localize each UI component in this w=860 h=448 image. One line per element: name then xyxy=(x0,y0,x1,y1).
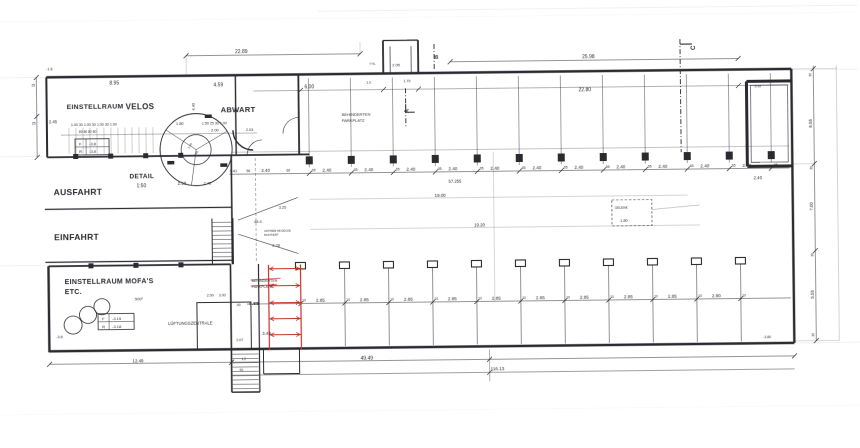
dim-label-vertical: 8.55 xyxy=(808,119,813,128)
scan-line xyxy=(0,12,858,22)
col-width-label: 65 xyxy=(774,163,778,167)
dim-label: 1.2 xyxy=(241,357,246,361)
col-width-label: 65 xyxy=(690,164,694,168)
top-parking-row: 652.40652.40652.40652.40652.40652.40652.… xyxy=(305,73,778,176)
red-behinderten-label: BEHINDERTEN xyxy=(252,279,278,283)
scan-artifacts xyxy=(0,5,860,415)
dim-label: 6.00 xyxy=(304,84,314,90)
dim-label: 8.95 xyxy=(109,81,119,87)
annotation-antrieb: MONTIERT xyxy=(264,233,279,237)
level-value: -3.52 xyxy=(753,84,761,88)
section-marker-b: B xyxy=(434,55,440,59)
wall-bottom xyxy=(49,343,794,351)
red-dim-label: 4.88 xyxy=(249,301,259,306)
column-symbol xyxy=(390,155,397,163)
room-label-einfahrt: EINFAHRT xyxy=(54,232,100,243)
col-width-label: 10 xyxy=(610,295,614,299)
bay-dim-label: 2.85 xyxy=(668,294,677,299)
column-symbol xyxy=(432,155,439,163)
red-stall-edge xyxy=(268,265,269,350)
dim-label: 25 xyxy=(31,83,35,87)
section-marker-c: C xyxy=(691,45,697,50)
level-value: -3.15 xyxy=(112,316,122,321)
dim-line xyxy=(253,85,788,91)
area-label: 500² xyxy=(135,296,144,301)
dim-line xyxy=(186,54,360,56)
column-symbol xyxy=(88,263,93,268)
column-symbol xyxy=(642,153,649,161)
wall-left-upper xyxy=(46,77,47,157)
red-stall-edge xyxy=(300,264,301,349)
behinderten-label: PARKPLATZ xyxy=(342,118,365,123)
tree-circle xyxy=(94,299,110,315)
wall-stair1-left xyxy=(212,218,213,264)
ramp-line xyxy=(238,197,298,220)
bay-dim-label: 2.85 xyxy=(448,296,457,301)
dim-label-chain: 80 80 80 80 xyxy=(79,130,97,134)
col-width-label: 65 xyxy=(312,168,316,172)
stall-divider xyxy=(608,266,609,343)
dim-label: 25 xyxy=(32,121,36,125)
labels: 22.89 25.98 8.95 4.59 6.00 22.80 2.45 1.… xyxy=(31,43,816,377)
tree-circle xyxy=(64,316,82,334)
stall-divider xyxy=(520,267,521,344)
column-symbol xyxy=(684,152,691,160)
dim-label-total-left: 22.89 xyxy=(235,49,248,55)
level-label: F xyxy=(102,316,105,321)
dim-label-chain: 1.00 30 1.00 30 1.00 30 1.00 xyxy=(71,123,117,128)
bay-dim-label: 2.40 xyxy=(616,164,625,169)
bay-dim-label: 2.40 xyxy=(574,165,583,170)
dim-line xyxy=(36,77,37,157)
spiral-spoke xyxy=(196,131,227,149)
dim-line xyxy=(836,65,839,340)
walls xyxy=(43,36,795,394)
col-width-label: 10 xyxy=(390,297,394,301)
bay-dim-label: 2.40 xyxy=(448,166,457,171)
column-footing xyxy=(471,260,481,267)
level-value: -3.8 xyxy=(89,149,97,154)
wall-lueftung-room xyxy=(197,302,252,350)
dim-label: 12.49 xyxy=(133,358,145,363)
column-symbol xyxy=(516,154,523,162)
detail-title: DETAIL xyxy=(129,173,154,180)
bay-dim-label: 2.40 xyxy=(322,168,331,173)
dim-label: 2.00 xyxy=(207,293,214,297)
level-label: F xyxy=(79,141,82,146)
column-footing xyxy=(339,262,349,269)
dim-label: 49.49 xyxy=(360,356,373,362)
column-symbol xyxy=(474,154,481,162)
column-footing xyxy=(691,258,701,265)
dim-label-vertical: 30 xyxy=(810,253,814,257)
col-width-label: 10 xyxy=(346,298,350,302)
dim-label: Y.NL xyxy=(369,62,376,66)
stall-divider xyxy=(686,74,687,163)
dimension-lines xyxy=(33,36,839,386)
col-width-label: 65 xyxy=(522,166,526,170)
col-width-label: 10 xyxy=(478,296,482,300)
dim-label: 2.45 xyxy=(203,180,212,185)
dim-label: 1.80 xyxy=(176,121,185,126)
dim-label-vertical: 5.55 xyxy=(810,290,815,299)
dim-label: 2.03 xyxy=(246,128,253,132)
wall-columns xyxy=(73,153,184,269)
col-width-label: 65 xyxy=(732,164,736,168)
stall-divider xyxy=(392,77,393,166)
room-label-mofas: EINSTELLRAUM MOFA'S xyxy=(65,278,154,286)
stall-divider xyxy=(644,75,645,164)
dim-label: 2.78 xyxy=(272,243,281,248)
wall-ramp-divider1 xyxy=(45,207,232,209)
bay-dim-label: 2.85 xyxy=(580,295,589,300)
stall-divider xyxy=(740,264,741,341)
dim-label: 65 xyxy=(286,169,290,173)
col-width-label: 65 xyxy=(648,165,652,169)
dim-label: 2.40 xyxy=(753,175,762,180)
wall-shaft-left xyxy=(230,264,231,392)
bay-dim-label: 2.40 xyxy=(364,167,373,172)
dim-label: 3.00 xyxy=(219,293,226,297)
wall-ramp-divider2 xyxy=(45,260,232,262)
section-line-c xyxy=(680,39,681,152)
wall-abwart-right xyxy=(298,74,299,154)
room-label-ausfahrt: AUSFAHRT xyxy=(54,187,103,198)
bay-dim-label: 2.85 xyxy=(624,294,633,299)
bay-dim-label: 2.85 xyxy=(360,297,369,302)
behinderten-label: BEHINDERTEN xyxy=(342,112,371,117)
stall-divider xyxy=(434,77,435,166)
bay-dim-label: 2.85 xyxy=(492,296,501,301)
bottom-parking-row: 102.85102.85102.85102.85102.85102.85102.… xyxy=(295,257,746,346)
wall-right xyxy=(791,69,794,343)
level-value: -3.18 xyxy=(112,324,122,329)
dim-label-chain: 1.50 25 30 1.00 xyxy=(202,121,227,125)
room-label-lueftung: LÜFTUNGSZENTRALE xyxy=(168,320,213,326)
dim-label: 4.59 xyxy=(213,82,223,88)
scan-line xyxy=(0,77,46,78)
column-symbol xyxy=(133,263,138,268)
col-width-label: 10 xyxy=(654,294,658,298)
dim-label-vertical: 30 xyxy=(808,73,812,77)
grid-line xyxy=(231,146,789,152)
dim-label: 90 xyxy=(240,368,244,372)
aisle-line xyxy=(310,195,688,199)
column-symbol xyxy=(178,262,183,267)
wall-left-lower xyxy=(48,266,49,352)
red-dim-label: 3.48 xyxy=(262,331,271,336)
col-width-label: 10 xyxy=(302,298,306,302)
aisle-line xyxy=(310,225,700,229)
leader-line xyxy=(652,205,700,210)
bay-dim-label: 2.40 xyxy=(532,165,541,170)
red-behinderten-label: PARKPLATZ xyxy=(252,285,273,289)
col-width-label: 65 xyxy=(480,167,484,171)
column-footing xyxy=(603,259,613,266)
scan-line xyxy=(2,405,860,415)
bay-dim-label: 2.40 xyxy=(700,163,709,168)
scan-line xyxy=(0,265,48,266)
stall-divider xyxy=(696,265,697,342)
column-footing xyxy=(647,258,657,265)
plan-root: 652.40652.40652.40652.40652.40652.40652.… xyxy=(0,5,860,415)
dim-label-total: 57.255 xyxy=(448,179,462,184)
column-symbol xyxy=(726,152,733,160)
column-footing xyxy=(427,261,437,268)
dim-label: 1.79 xyxy=(403,79,410,83)
dim-label: 3.25 xyxy=(279,206,286,210)
stall-divider xyxy=(560,76,561,165)
column-symbol xyxy=(558,153,565,161)
level-value: -1.8 xyxy=(46,67,52,71)
col-width-label: 65 xyxy=(564,166,568,170)
spiral-spoke xyxy=(166,130,196,150)
scan-line xyxy=(794,342,860,343)
wall-shaft-right xyxy=(258,264,259,392)
wall-mofas-top xyxy=(48,264,230,266)
gelenk-box xyxy=(612,199,652,225)
dim-label: 48.4 xyxy=(254,219,263,224)
bay-dim-label: 2.40 xyxy=(742,163,751,168)
dim-label: 2.40 xyxy=(261,168,270,173)
col-width-label: 10 xyxy=(434,297,438,301)
stall-divider xyxy=(432,268,433,345)
scanned-floor-plan-sheet: 652.40652.40652.40652.40652.40652.40652.… xyxy=(0,0,860,448)
stall-divider xyxy=(602,75,603,164)
col-width-label: 10 xyxy=(742,293,746,297)
column-symbol xyxy=(600,153,607,161)
dim-label: 56 xyxy=(246,169,250,173)
bay-dim-label: 2.80 xyxy=(712,293,721,298)
column-symbol xyxy=(306,156,313,164)
level-value: -3.8 xyxy=(56,335,63,339)
dim-label: 1.0 xyxy=(366,81,371,85)
level-label: R xyxy=(102,324,105,329)
bay-dim-label: 2.85 xyxy=(536,295,545,300)
dim-label: 2.45 xyxy=(49,119,58,124)
col-width-label: 65 xyxy=(396,168,400,172)
spiral-block xyxy=(220,163,227,167)
col-width-label: 65 xyxy=(606,165,610,169)
stall-divider xyxy=(518,76,519,165)
col-width-label: 65 xyxy=(354,168,358,172)
stall-divider xyxy=(728,74,729,163)
spiral-block xyxy=(167,161,174,165)
bay-dim-label: 2.40 xyxy=(490,166,499,171)
axis-dashed xyxy=(255,158,256,262)
bay-dim-label: 2.85 xyxy=(316,298,325,303)
dim-label-vertical: 7.00 xyxy=(809,202,814,211)
col-width-label: 10 xyxy=(698,294,702,298)
wall-right-room xyxy=(746,81,791,82)
column-symbol xyxy=(348,156,355,164)
stall-divider xyxy=(476,267,477,344)
dim-label-vertical: 4.40 xyxy=(191,102,196,111)
bay-dim-label: 2.40 xyxy=(658,164,667,169)
wall-right-room xyxy=(747,166,792,167)
column-footing xyxy=(383,261,393,268)
stall-divider xyxy=(345,269,346,346)
stall-divider xyxy=(564,266,565,343)
dim-label: .90 xyxy=(236,303,241,307)
dim-label: 19.00 xyxy=(435,193,447,198)
section-markers xyxy=(405,39,700,228)
dim-label: 116.13 xyxy=(491,366,505,371)
room-label-mofas-etc: ETC. xyxy=(65,289,82,296)
section-marker-a: A xyxy=(405,108,411,113)
scan-line xyxy=(318,5,858,11)
level-value: -3.8 xyxy=(89,141,97,146)
wall-right-room xyxy=(746,81,747,166)
column-footing xyxy=(559,259,569,266)
dim-line xyxy=(50,356,795,364)
dim-label: 2.50 xyxy=(177,181,186,186)
column-footing xyxy=(735,257,745,264)
col-width-label: 65 xyxy=(438,167,442,171)
floor-plan-svg: 652.40652.40652.40652.40652.40652.40652.… xyxy=(0,0,860,448)
room-label-velos: VELOS xyxy=(126,102,155,111)
dim-label: 1.80 xyxy=(620,218,629,223)
col-width-label: 10 xyxy=(522,296,526,300)
dim-label-total-right: 25.98 xyxy=(582,54,595,60)
wall-right-room-inner xyxy=(750,85,788,162)
dim-label: 2.05 xyxy=(392,62,401,67)
dim-label: 22.80 xyxy=(578,87,591,93)
column-symbol xyxy=(768,151,775,159)
dim-label: 19.20 xyxy=(474,222,486,227)
column-footing xyxy=(515,260,525,267)
dim-label: 2.07 xyxy=(236,338,243,342)
level-label: R xyxy=(79,149,82,154)
stall-divider xyxy=(770,73,771,162)
annotation-gelenk: GELENK xyxy=(615,206,629,210)
door-arc xyxy=(283,117,299,133)
bay-dim-label: 2.85 xyxy=(404,297,413,302)
dim-line xyxy=(232,369,795,375)
level-value: -3.80 xyxy=(763,335,771,339)
dim-label-vertical: 30 xyxy=(811,333,815,337)
dim-label-vertical: 30 xyxy=(809,166,813,170)
spiral-label: 1.00 xyxy=(187,142,194,149)
room-label-einstellraum: EINSTELLRAUM xyxy=(67,103,124,111)
room-label-abwart: ABWART xyxy=(221,105,256,114)
column-symbol xyxy=(143,153,148,158)
col-width-label: 10 xyxy=(566,295,570,299)
stall-divider xyxy=(652,265,653,342)
dim-label: 2.00 xyxy=(211,127,220,132)
spiral-block xyxy=(205,114,212,118)
axis-line xyxy=(493,152,495,301)
bay-dim-label: 2.40 xyxy=(406,167,415,172)
detail-scale: 1:50 xyxy=(137,183,147,189)
door-arc xyxy=(247,140,262,155)
stall-divider xyxy=(476,76,477,165)
stall-divider xyxy=(389,268,390,345)
dim-label: 1.41 xyxy=(229,168,238,173)
wall-abwart-left xyxy=(235,75,236,155)
scan-line xyxy=(791,69,858,70)
